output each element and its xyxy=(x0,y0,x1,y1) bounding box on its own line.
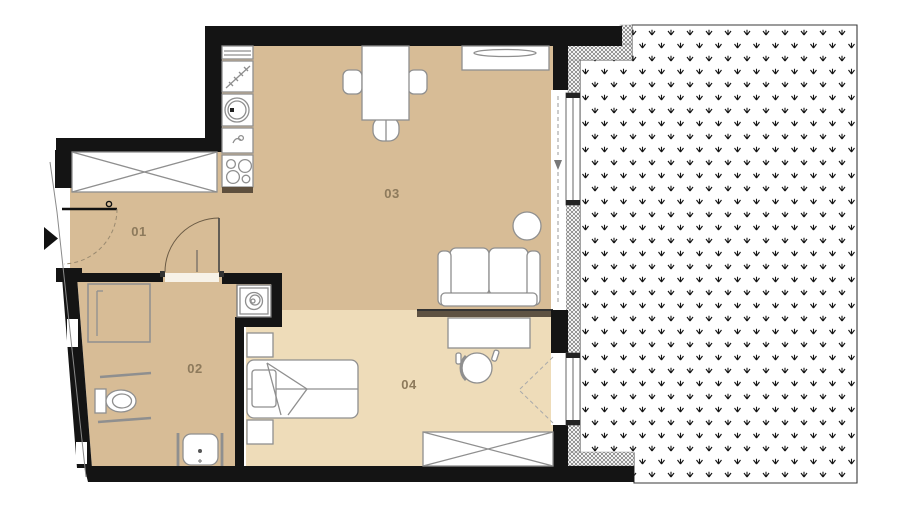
faucet-icon xyxy=(222,128,253,153)
desk xyxy=(448,318,530,348)
wall-niche-2 xyxy=(76,442,87,464)
wall-left-upper xyxy=(55,150,73,188)
nightstand xyxy=(247,420,273,444)
wall-right-mid-block xyxy=(551,310,568,353)
wall-hall-bottom xyxy=(62,273,163,282)
sofa-back xyxy=(441,293,537,306)
door-jamb xyxy=(160,271,165,277)
room-04-label: 04 xyxy=(394,377,424,392)
dining-table xyxy=(362,46,409,120)
wardrobe-hall xyxy=(72,152,217,192)
dining-chair-right xyxy=(408,70,427,94)
room-divider xyxy=(417,311,553,317)
room-01-label: 01 xyxy=(124,224,154,239)
bedroom-window-sill xyxy=(551,353,566,425)
floor-plan: 01 02 03 04 xyxy=(0,0,902,513)
wall-kitchen-left xyxy=(205,26,222,146)
floor-plan-drawing xyxy=(0,0,902,513)
wall-bottom xyxy=(84,466,634,482)
wall-hall-top xyxy=(56,138,222,152)
room-03-label: 03 xyxy=(377,186,407,201)
side-table xyxy=(513,212,541,240)
wall-bath-right xyxy=(235,317,244,468)
pillow xyxy=(252,370,276,407)
sofa xyxy=(438,248,540,306)
sofa-cushion xyxy=(489,248,528,295)
wall-right-top-block xyxy=(553,26,568,90)
nightstand xyxy=(247,333,273,357)
door-threshold xyxy=(165,273,219,282)
room-02-label: 02 xyxy=(180,361,210,376)
kitchen-shelf xyxy=(222,46,253,59)
sideboard xyxy=(462,46,549,70)
sofa-cushion xyxy=(450,248,489,295)
bed xyxy=(247,360,358,418)
washing-machine-icon xyxy=(237,285,271,317)
room-divider-edge xyxy=(417,309,553,311)
washbasin xyxy=(178,433,222,466)
wall-right-bottom-block xyxy=(553,425,568,468)
dining-chair-left xyxy=(343,70,362,94)
counter-edge xyxy=(222,187,253,193)
wall-niche-1 xyxy=(67,319,78,347)
kitchen-counter xyxy=(222,46,253,193)
terrace-area xyxy=(580,25,857,483)
wardrobe-bedroom xyxy=(423,432,553,466)
